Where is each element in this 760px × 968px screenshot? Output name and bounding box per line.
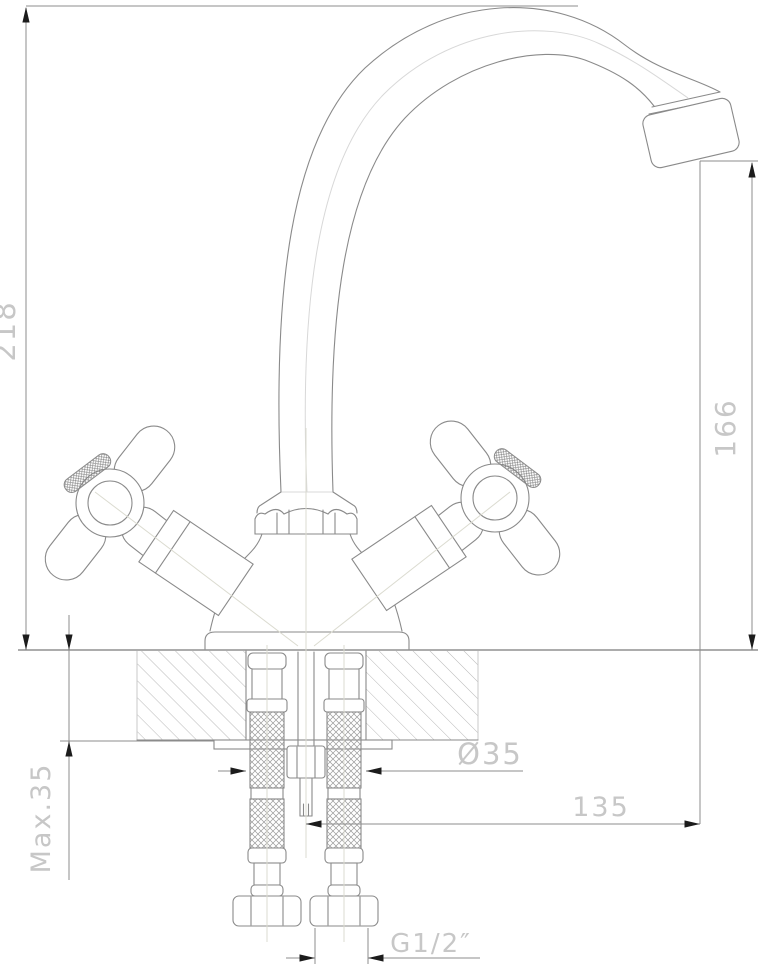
arrowhead: [300, 954, 316, 961]
dim-spout-reach-label: 135: [572, 792, 630, 823]
deck-hatch-right: [366, 651, 478, 740]
arrowhead: [65, 741, 72, 757]
arrowhead: [231, 767, 247, 774]
dim-hole-diameter-label: Ø35: [457, 737, 523, 771]
arrowhead: [22, 635, 29, 651]
arrowhead: [366, 767, 382, 774]
arrowhead: [748, 162, 755, 178]
arrowhead: [306, 820, 322, 827]
arrowhead: [368, 954, 384, 961]
dimension-thread-size: G1/2″: [286, 928, 480, 964]
left-handle: [37, 418, 253, 616]
arrowhead: [65, 635, 72, 651]
spout: [279, 8, 741, 492]
base-escutcheon: [205, 632, 409, 650]
technical-drawing: 218 166 Max.35 Ø35 135 G1/2″: [0, 0, 760, 968]
arrowhead: [22, 7, 29, 23]
faucet: [37, 8, 741, 650]
arrowhead: [748, 635, 755, 651]
right-handle: [352, 413, 568, 611]
dim-deck-thickness-label: Max.35: [26, 763, 57, 874]
deck-hatch-left: [137, 651, 246, 740]
arrowhead: [685, 820, 701, 827]
aerator-nozzle: [641, 97, 741, 170]
dim-total-height-label: 218: [0, 300, 22, 361]
countertop-section: [137, 651, 478, 740]
dimension-spout-height: 166: [700, 161, 758, 650]
drawing-canvas: 218 166 Max.35 Ø35 135 G1/2″: [0, 0, 760, 968]
dim-spout-height-label: 166: [709, 398, 742, 457]
spout-highlight: [305, 31, 688, 492]
dim-thread-size-label: G1/2″: [390, 929, 472, 959]
